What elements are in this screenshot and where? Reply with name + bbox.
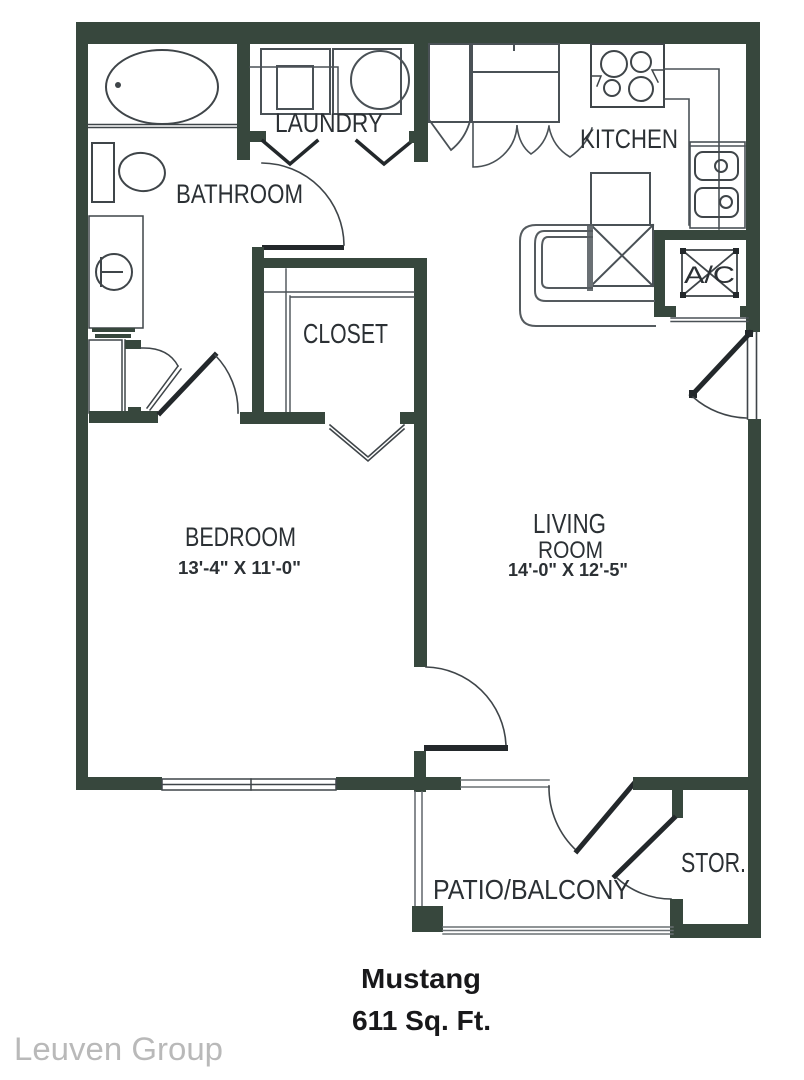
svg-text:13'-4" X 11'-0": 13'-4" X 11'-0" — [178, 558, 301, 578]
svg-text:BATHROOM: BATHROOM — [176, 179, 303, 209]
svg-text:LIVING: LIVING — [533, 508, 606, 539]
svg-text:BEDROOM: BEDROOM — [185, 522, 296, 552]
svg-text:LAUNDRY: LAUNDRY — [275, 108, 383, 138]
svg-text:611 Sq. Ft.: 611 Sq. Ft. — [352, 1005, 491, 1036]
svg-text:Mustang: Mustang — [361, 963, 481, 994]
svg-text:14'-0" X 12'-5": 14'-0" X 12'-5" — [508, 560, 628, 580]
svg-text:PATIO/BALCONY: PATIO/BALCONY — [433, 874, 630, 905]
svg-text:KITCHEN: KITCHEN — [580, 124, 678, 154]
svg-text:A/C: A/C — [684, 262, 735, 289]
svg-text:Leuven Group: Leuven Group — [14, 1031, 223, 1067]
svg-text:CLOSET: CLOSET — [303, 318, 388, 349]
svg-text:STOR.: STOR. — [681, 847, 746, 878]
